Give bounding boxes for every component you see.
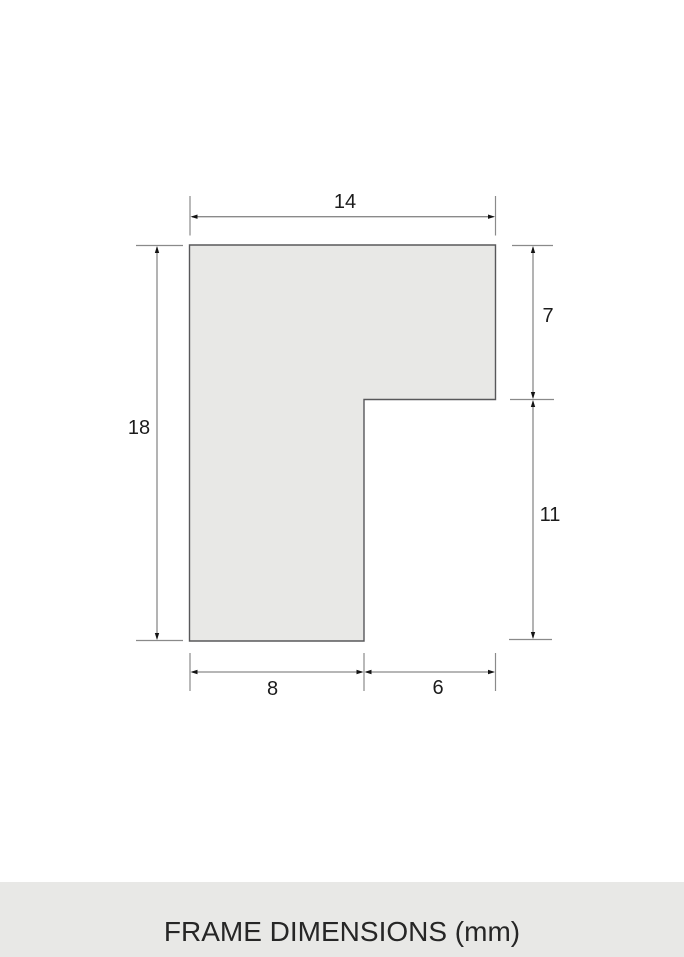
svg-text:11: 11: [540, 504, 561, 526]
svg-text:7: 7: [542, 305, 553, 327]
svg-text:6: 6: [432, 677, 443, 699]
svg-text:8: 8: [267, 678, 278, 700]
svg-text:18: 18: [128, 417, 150, 439]
svg-text:14: 14: [334, 191, 356, 213]
